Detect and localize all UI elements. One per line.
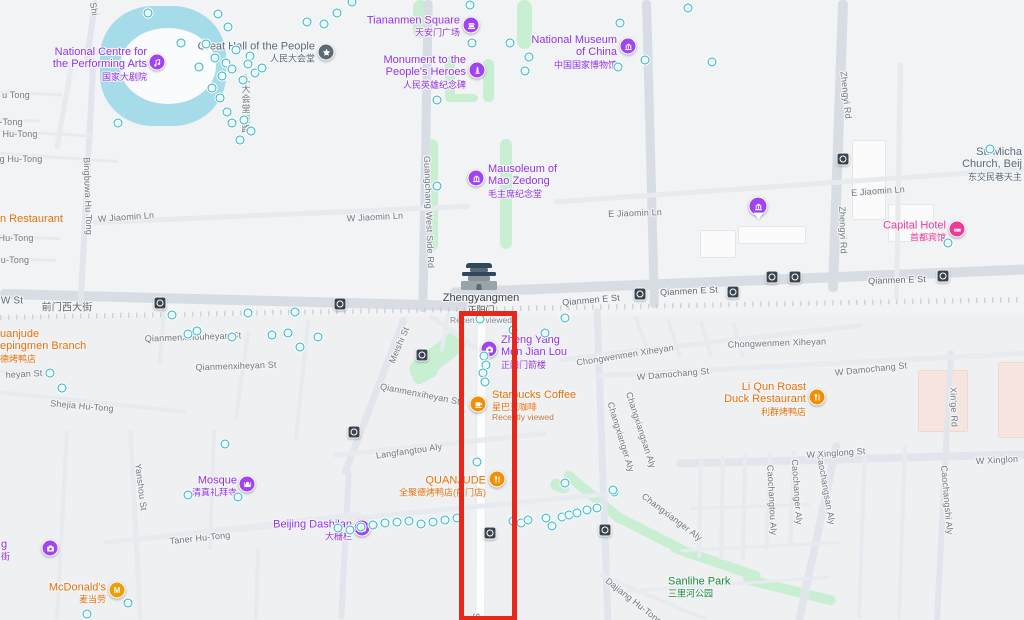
road (642, 0, 659, 308)
poi-name-chinese: 全聚德烤鸭店(前门店) (399, 488, 486, 498)
road (128, 430, 143, 620)
street-label: W Xinglon (976, 454, 1019, 466)
poi-dot[interactable] (593, 504, 602, 513)
poi-name-chinese: 麦当劳 (49, 595, 106, 605)
poi-dot[interactable] (521, 67, 530, 76)
poi-name: of China (531, 46, 617, 58)
poi-dot[interactable] (268, 331, 277, 340)
poi-dot[interactable] (195, 63, 204, 72)
poi-dot[interactable] (466, 1, 475, 10)
subway-station-icon[interactable] (766, 271, 779, 284)
poi-dot[interactable] (525, 53, 534, 62)
poi-dot[interactable] (616, 19, 625, 28)
poi-dot[interactable] (524, 516, 533, 525)
mcdonalds-icon[interactable]: M (109, 582, 126, 599)
poi-dot[interactable] (144, 9, 153, 18)
poi-dot[interactable] (296, 343, 305, 352)
poi-dot[interactable] (393, 518, 402, 527)
svg-text:M: M (114, 586, 121, 595)
subway-station-icon[interactable] (837, 153, 850, 166)
poi-dot[interactable] (124, 599, 133, 608)
poi-dot[interactable] (211, 54, 220, 63)
mosque-icon[interactable] (239, 476, 256, 493)
street-label: Qianmen E St (660, 284, 718, 297)
ncpa-icon[interactable] (149, 54, 166, 71)
poi-name: Capital Hotel (883, 219, 946, 231)
poi-name: Mao Zedong (488, 175, 557, 187)
poi-partial-left-label[interactable]: g街 (1, 538, 10, 561)
poi-dot[interactable] (216, 94, 225, 103)
zhengyangmen-gate-illustration[interactable] (460, 263, 498, 291)
poi-name: Tiananmen Square (367, 14, 460, 26)
poi-dot[interactable] (573, 509, 582, 518)
poi-dot[interactable] (433, 182, 442, 191)
poi-dot[interactable] (247, 127, 256, 136)
road (294, 320, 311, 440)
subway-station-icon[interactable] (348, 426, 361, 439)
building-footprint (700, 230, 736, 258)
poi-dot[interactable] (357, 523, 366, 532)
mausoleum-mao-zedong-label[interactable]: Mausoleum ofMao Zedong毛主席纪念堂 (488, 163, 557, 199)
poi-dot[interactable] (232, 46, 241, 55)
poi-name-chinese: 东交民巷天主 (962, 172, 1022, 182)
poi-name: McDonald's (49, 581, 106, 593)
poi-dot[interactable] (453, 514, 462, 523)
poi-dot[interactable] (46, 369, 55, 378)
poi-dot[interactable] (684, 4, 693, 13)
chengyangmen-jianlou-label[interactable]: Zheng YangMen Jian Lou正阳门箭楼 (501, 334, 567, 370)
poi-dot[interactable] (433, 96, 442, 105)
mcdonalds-label[interactable]: McDonald's麦当劳 (49, 581, 106, 604)
poi-dot[interactable] (468, 39, 477, 48)
poi-dot[interactable] (258, 64, 267, 73)
poi-name-chinese: 清真礼拜寺 (192, 488, 237, 498)
subway-station-icon[interactable] (416, 349, 429, 362)
poi-dot[interactable] (291, 308, 300, 317)
building-footprint (998, 362, 1024, 438)
poi-name: Starbucks Coffee (492, 389, 576, 401)
poi-note: Recently viewed (492, 413, 576, 423)
subway-station-icon[interactable] (937, 270, 950, 283)
poi-name-chinese: 星巴克咖啡 (492, 402, 576, 412)
poi-dot[interactable] (641, 56, 650, 65)
poi-name: epingmen Branch (0, 340, 86, 352)
tiananmen-square-label[interactable]: Tiananmen Square天安门广场 (367, 14, 460, 37)
poi-name: Monument to the (383, 54, 466, 66)
street-label: heyan St (5, 368, 42, 380)
street-label: 前门西大街 (42, 299, 93, 314)
restaurant-partial-label[interactable]: n Restaurant (0, 213, 63, 225)
poi-name: g (1, 538, 10, 550)
poi-name: Men Jian Lou (501, 346, 567, 358)
poi-dot[interactable] (614, 63, 623, 72)
park-area (517, 0, 532, 49)
poi-name-chinese: 三里河公园 (668, 589, 730, 599)
poi-dot[interactable] (303, 18, 312, 27)
poi-dot[interactable] (369, 521, 378, 530)
poi-name: the Performing Arts (53, 58, 147, 70)
poi-dot[interactable] (228, 65, 237, 74)
poi-name: Zheng Yang (501, 334, 567, 346)
poi-dot[interactable] (208, 84, 217, 93)
street-label: W Jiaomin Ln (347, 211, 404, 224)
poi-name: Duck Restaurant (724, 393, 806, 405)
great-hall-icon[interactable] (318, 44, 335, 61)
poi-name-chinese: 大栅栏 (273, 532, 352, 542)
poi-dot[interactable] (83, 610, 92, 619)
mosque-label[interactable]: Mosque清真礼拜寺 (192, 474, 237, 497)
mausoleum-mao-zedong-icon[interactable] (468, 170, 485, 187)
subway-station-icon[interactable] (727, 286, 740, 299)
poi-name-chinese: 人民英雄纪念碑 (383, 80, 466, 90)
subway-station-icon[interactable] (599, 524, 612, 537)
street-label: Shi (88, 1, 100, 16)
poi-name-chinese: 利群烤鸭店 (724, 407, 806, 417)
street-label: Chongwenmen Xiheyan (576, 342, 675, 367)
poi-dot[interactable] (333, 9, 342, 18)
poi-dot[interactable] (561, 314, 570, 323)
quanjude-hepingmen-label[interactable]: uanjudeepingmen Branch德烤鸭店 (0, 328, 86, 364)
street-label: Chongwenmen Xiheyan (728, 336, 827, 349)
poi-name: Zhengyangmen (443, 292, 519, 304)
poi-name: Li Qun Roast (724, 381, 806, 393)
poi-dot[interactable] (184, 330, 193, 339)
poi-dot[interactable] (506, 39, 515, 48)
poi-name: Church, Beij (962, 158, 1022, 170)
poi-partial-left-icon[interactable] (42, 540, 59, 557)
poi-dot[interactable] (473, 458, 482, 467)
poi-dot[interactable] (214, 10, 223, 19)
poi-dot[interactable] (348, 0, 357, 7)
poi-dot[interactable] (236, 136, 245, 145)
poi-name: Mosque (192, 474, 237, 486)
poi-dot[interactable] (381, 519, 390, 528)
street-label: -Tong (0, 117, 23, 127)
poi-name: Mausoleum of (488, 163, 557, 175)
poi-dot[interactable] (583, 506, 592, 515)
poi-name: Great Hall of the People (198, 40, 315, 52)
poi-dot[interactable] (320, 20, 329, 29)
poi-dot[interactable] (944, 239, 953, 248)
subway-station-icon[interactable] (484, 527, 497, 540)
poi-name-chinese: 德烤鸭店 (0, 354, 86, 364)
liqun-roast-duck-label[interactable]: Li Qun RoastDuck Restaurant利群烤鸭店 (724, 381, 806, 417)
building-footprint (918, 370, 968, 432)
road (897, 446, 907, 620)
gate-part (477, 284, 482, 290)
street-label: W St (1, 296, 23, 307)
poi-name: People's Heroes (383, 66, 466, 78)
poi-dot[interactable] (405, 517, 414, 526)
poi-dot[interactable] (177, 39, 186, 48)
street-label: Zhengyi Rd (837, 206, 849, 254)
subway-station-icon[interactable] (634, 288, 647, 301)
poi-dot[interactable] (223, 108, 232, 117)
poi-dot[interactable] (168, 311, 177, 320)
poi-dot[interactable] (346, 526, 355, 535)
capital-hotel-label[interactable]: Capital Hotel首都宾馆 (883, 219, 946, 242)
poi-dot[interactable] (417, 520, 426, 529)
poi-dot[interactable] (509, 326, 518, 335)
poi-dot[interactable] (334, 524, 343, 533)
street-label: W Damochang St (636, 366, 709, 382)
street-label: u Tong (2, 90, 30, 100)
poi-name: n Restaurant (0, 213, 63, 225)
poi-name-chinese: 首都宾馆 (883, 233, 946, 243)
street-label: Qianmenxiheyan St (195, 360, 276, 373)
poi-dot[interactable] (479, 369, 488, 378)
poi-dot[interactable] (244, 309, 253, 318)
starbucks-icon[interactable] (470, 396, 487, 413)
national-museum-label[interactable]: National Museumof China中国国家博物馆 (531, 34, 617, 70)
building-footprint (738, 226, 806, 244)
poi-name-chinese: 国家大剧院 (53, 72, 147, 82)
park-area (446, 94, 478, 102)
road (553, 166, 1024, 204)
poi-dot[interactable] (541, 329, 550, 338)
poi-dot[interactable] (609, 486, 618, 495)
street-label: E Jiaomin Ln (608, 207, 662, 219)
road (254, 548, 261, 620)
poi-dot[interactable] (193, 327, 202, 336)
capital-hotel-icon[interactable] (949, 221, 966, 238)
street-label: S (471, 613, 481, 619)
poi-dot[interactable] (228, 333, 237, 342)
street-label: u-Tong (1, 255, 29, 265)
poi-dot[interactable] (314, 333, 323, 342)
museum-pin-icon[interactable] (749, 197, 768, 216)
poi-name-chinese: 街 (1, 552, 10, 562)
tiananmen-square-icon[interactable] (463, 17, 480, 34)
poi-dot[interactable] (480, 352, 489, 361)
map-canvas[interactable]: u Tong-TongHu-Tongg Hu-TongHu-Tongu-Tong… (0, 0, 1024, 620)
poi-name-chinese: 正阳门箭楼 (501, 360, 567, 370)
poi-dot[interactable] (284, 329, 293, 338)
street-label: Hu-Tong (0, 233, 34, 243)
poi-name: QUANJUDE (399, 474, 486, 486)
poi-dot[interactable] (561, 479, 570, 488)
national-museum-icon[interactable] (620, 38, 637, 55)
road (338, 470, 352, 620)
poi-dot[interactable] (228, 119, 237, 128)
poi-dot[interactable] (202, 40, 211, 49)
poi-name: National Museum (531, 34, 617, 46)
quanjude-qianmen-label[interactable]: QUANJUDE全聚德烤鸭店(前门店) (399, 474, 486, 497)
poi-dot[interactable] (58, 384, 67, 393)
poi-dot[interactable] (114, 119, 123, 128)
poi-dot[interactable] (244, 60, 253, 69)
poi-dot[interactable] (218, 72, 227, 81)
liqun-roast-duck-icon[interactable] (809, 389, 826, 406)
poi-dot[interactable] (224, 23, 233, 32)
poi-name-chinese: 天安门广场 (367, 28, 460, 38)
poi-dot[interactable] (481, 378, 490, 387)
poi-dot[interactable] (240, 116, 249, 125)
poi-dot[interactable] (239, 76, 248, 85)
monument-peoples-heroes-icon[interactable] (469, 62, 486, 79)
road (857, 448, 867, 618)
poi-dot[interactable] (476, 315, 485, 324)
poi-name: uanjude (0, 328, 86, 340)
monument-peoples-heroes-label[interactable]: Monument to thePeople's Heroes人民英雄纪念碑 (383, 54, 466, 90)
subway-station-icon[interactable] (334, 298, 347, 311)
poi-dot[interactable] (429, 518, 438, 527)
poi-dot[interactable] (234, 493, 243, 502)
poi-name-chinese: 毛主席纪念堂 (488, 189, 557, 199)
poi-dot[interactable] (441, 516, 450, 525)
road (234, 330, 250, 420)
street-label: Hu-Tong (2, 129, 37, 139)
poi-dot[interactable] (708, 58, 717, 67)
street-label: Qianmenxiheyan St (379, 381, 461, 406)
poi-dot[interactable] (548, 522, 557, 531)
poi-name: National Centre for (53, 46, 147, 58)
street-label: Xin'ge Rd (948, 387, 959, 427)
starbucks-label[interactable]: Starbucks Coffee星巴克咖啡Recently viewed (492, 389, 576, 423)
poi-name-chinese: 中国国家博物馆 (531, 60, 617, 70)
subway-station-icon[interactable] (154, 297, 167, 310)
poi-name: Sanlihe Park (668, 575, 730, 587)
subway-station-icon[interactable] (789, 271, 802, 284)
poi-dot[interactable] (184, 491, 193, 500)
street-label: Qianmen E St (868, 274, 926, 286)
quanjude-qianmen-icon[interactable] (489, 471, 506, 488)
street-label: g Hu-Tong (0, 154, 42, 164)
street-label: Bingbuwa Hu Tong (82, 157, 95, 235)
ncpa-label[interactable]: National Centre forthe Performing Arts国家… (53, 46, 147, 82)
road (894, 62, 903, 300)
poi-dot[interactable] (986, 145, 995, 154)
sanlihe-park-label[interactable]: Sanlihe Park三里河公园 (668, 575, 730, 598)
poi-dot[interactable] (221, 440, 230, 449)
